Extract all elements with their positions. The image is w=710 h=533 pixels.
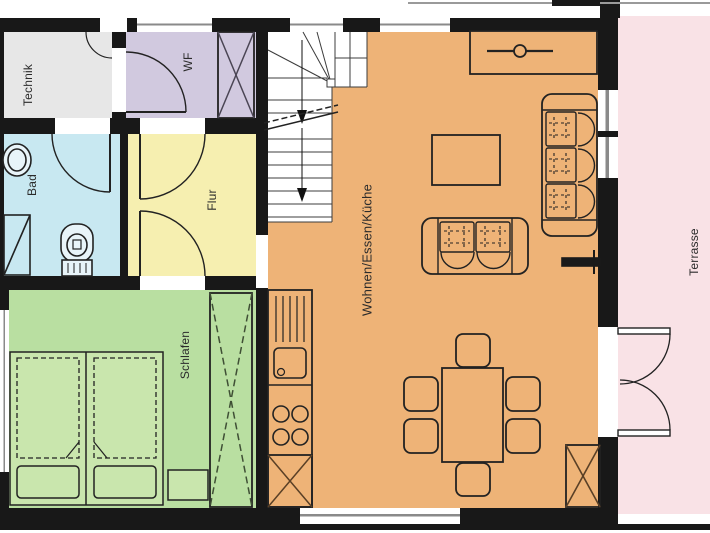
wall-bad-flur [120, 134, 128, 276]
window-top-stairs [290, 18, 343, 32]
window-bottom-living [300, 508, 460, 524]
label-wohnen: Wohnen/Essen/Küche [360, 184, 375, 316]
label-wf: WF [181, 52, 195, 71]
entrance-opening [100, 18, 127, 32]
label-schlafen: Schlafen [178, 331, 192, 379]
window-top-living [380, 18, 450, 32]
doorway-terrace [598, 327, 618, 437]
room-schlafen [4, 290, 256, 508]
doorway-vestibule [112, 48, 126, 112]
label-bad: Bad [25, 174, 39, 196]
wall-interior-a [0, 118, 268, 134]
section-mark [552, 0, 600, 6]
floor-plan: Technik WF Bad Flur Schlafen Wohnen/Esse… [0, 0, 710, 533]
doorway-flur [140, 118, 205, 134]
window-right-divider [598, 131, 618, 137]
wall-left-thin [0, 18, 4, 290]
label-flur: Flur [205, 189, 219, 210]
wall-schlafen [0, 276, 268, 290]
label-technik: Technik [21, 64, 35, 106]
room-bad [4, 134, 120, 276]
passage-flur-wohnen [256, 235, 268, 288]
window-top-wf [137, 18, 212, 32]
room-flur [128, 134, 256, 276]
stairwell-lower [268, 32, 332, 222]
doorway-bad [55, 118, 110, 134]
window-left-schlafen [0, 310, 9, 472]
doorway-schlafen [140, 276, 205, 290]
frame-bottom [0, 524, 710, 530]
label-terrasse: Terrasse [687, 228, 701, 276]
room-wf [126, 32, 256, 118]
